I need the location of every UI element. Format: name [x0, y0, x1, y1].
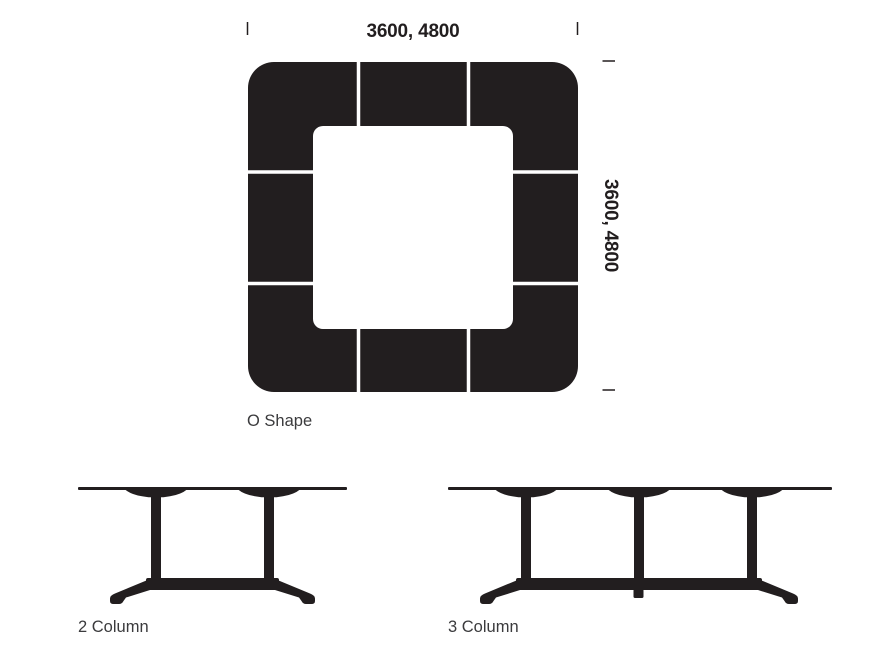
base-leg-left: [480, 579, 520, 604]
table-column: [521, 492, 531, 582]
o-shape-label: O Shape: [247, 412, 312, 431]
three-column-label: 3 Column: [448, 618, 519, 637]
table-column: [747, 492, 757, 582]
base-beam: [516, 578, 762, 590]
table-column: [151, 492, 161, 582]
two-column-label: 2 Column: [78, 618, 149, 637]
table-column: [264, 492, 274, 582]
base-leg-right: [275, 579, 315, 604]
tabletop: [78, 487, 347, 490]
two-column-elevation: [78, 487, 347, 604]
base-leg-left: [110, 579, 150, 604]
top-dimension-label: 3600, 4800: [248, 21, 578, 43]
table-column: [634, 492, 644, 582]
center-foot-glide: [634, 589, 644, 598]
o-shape-plan: [246, 22, 615, 394]
diagram-artwork: [0, 0, 893, 670]
o-shape-ring: [248, 62, 578, 392]
side-dimension-label: 3600, 4800: [595, 61, 621, 390]
three-column-elevation: [448, 487, 832, 604]
spec-diagram-canvas: 3600, 4800 3600, 4800 O Shape 2 Column 3…: [0, 0, 893, 670]
base-beam: [146, 578, 279, 590]
base-leg-right: [758, 579, 798, 604]
